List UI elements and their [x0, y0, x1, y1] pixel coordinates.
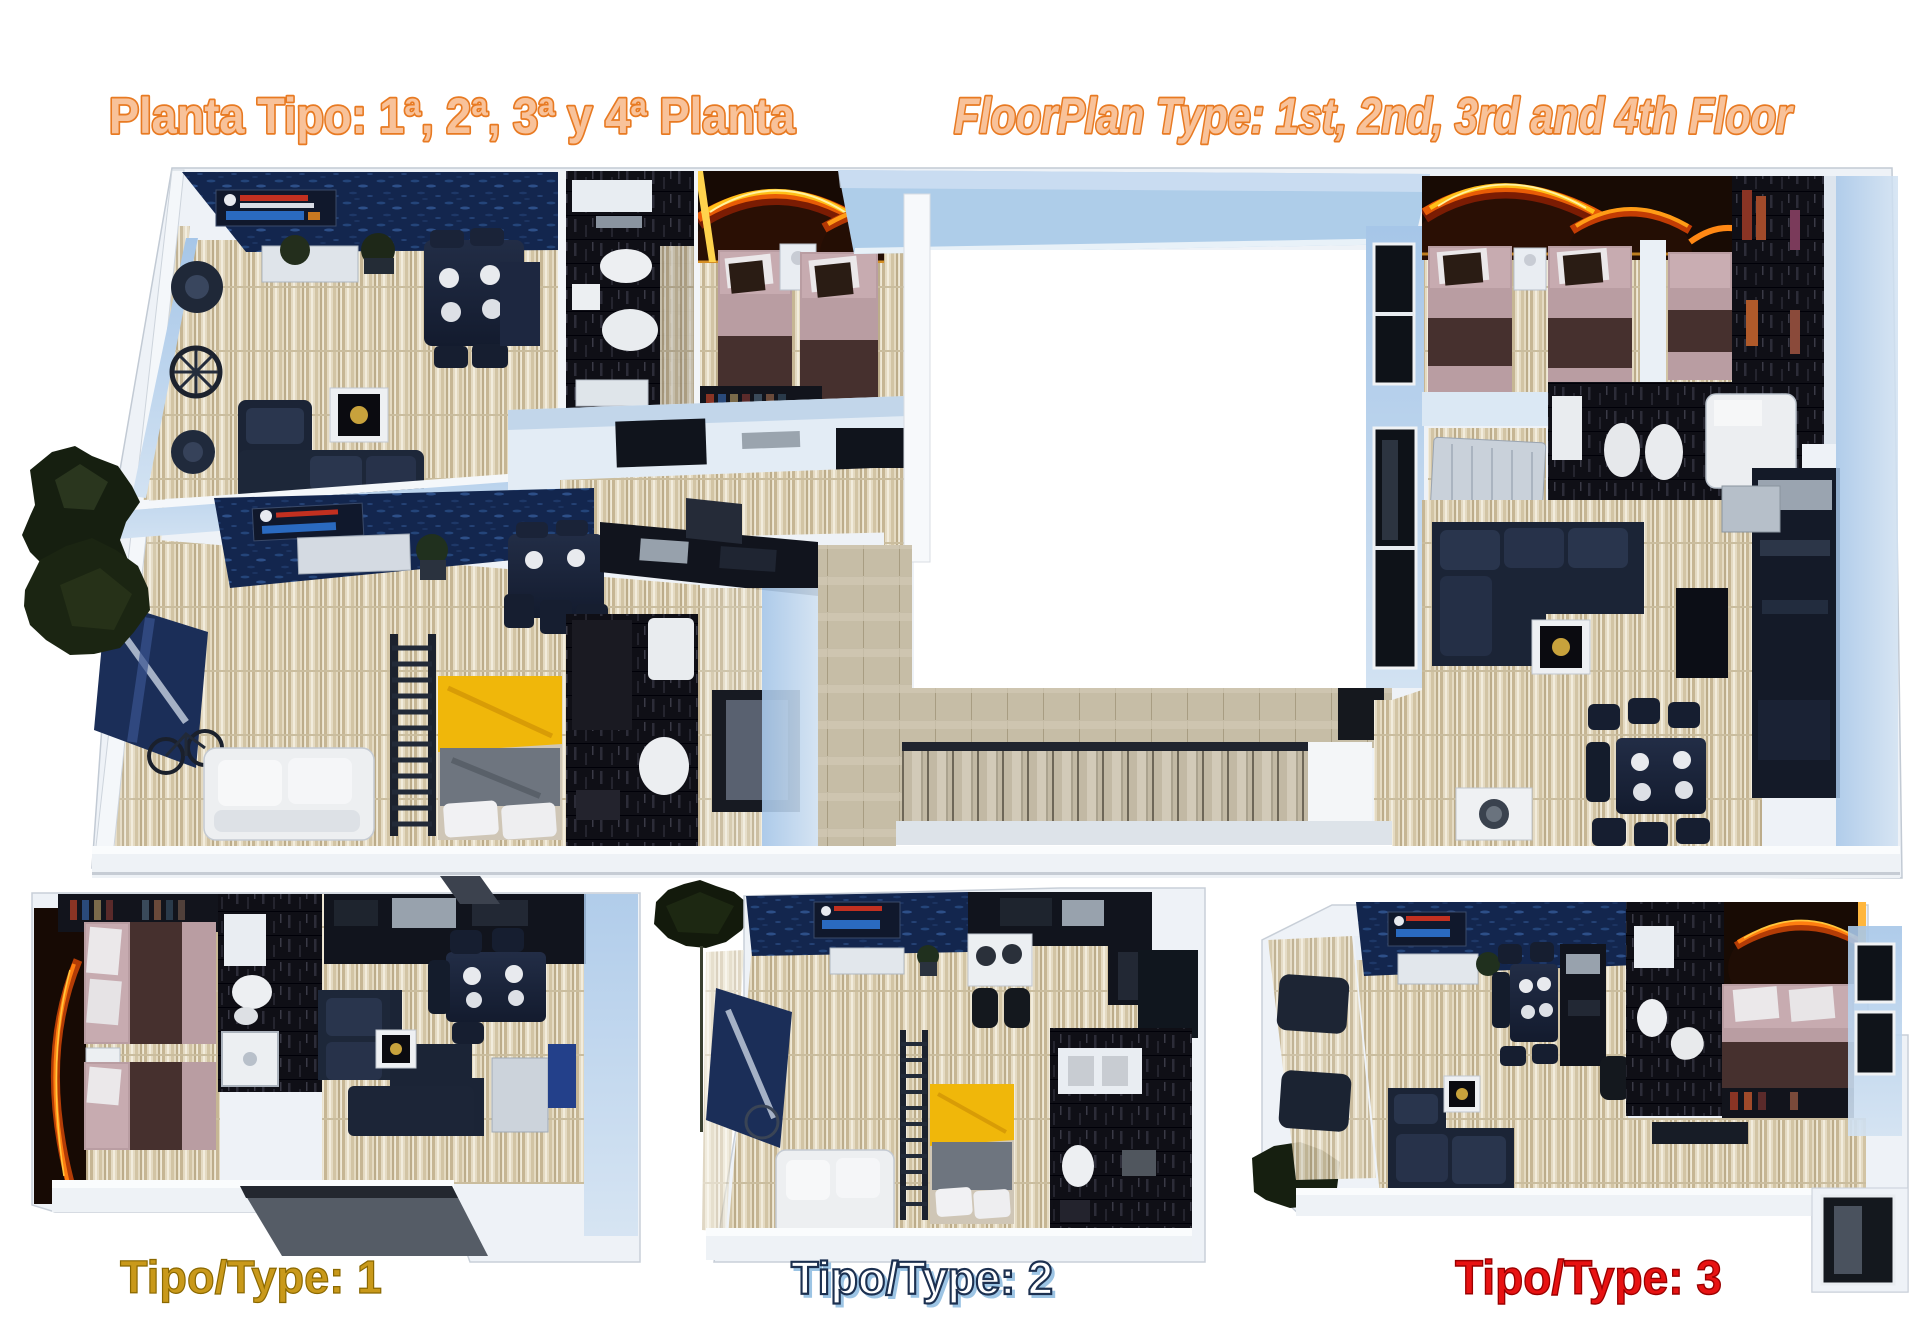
svg-text:FloorPlan Type: 1st, 2nd, 3rd: FloorPlan Type: 1st, 2nd, 3rd and 4th Fl…	[954, 88, 1794, 144]
svg-text:Tipo/Type: 1: Tipo/Type: 1	[120, 1251, 382, 1303]
svg-text:Planta Tipo: 1ª, 2ª, 3ª y 4ª P: Planta Tipo: 1ª, 2ª, 3ª y 4ª Planta	[109, 88, 796, 144]
svg-text:Tipo/Type: 3: Tipo/Type: 3	[1455, 1252, 1722, 1305]
svg-text:Tipo/Type: 2: Tipo/Type: 2	[791, 1252, 1053, 1304]
